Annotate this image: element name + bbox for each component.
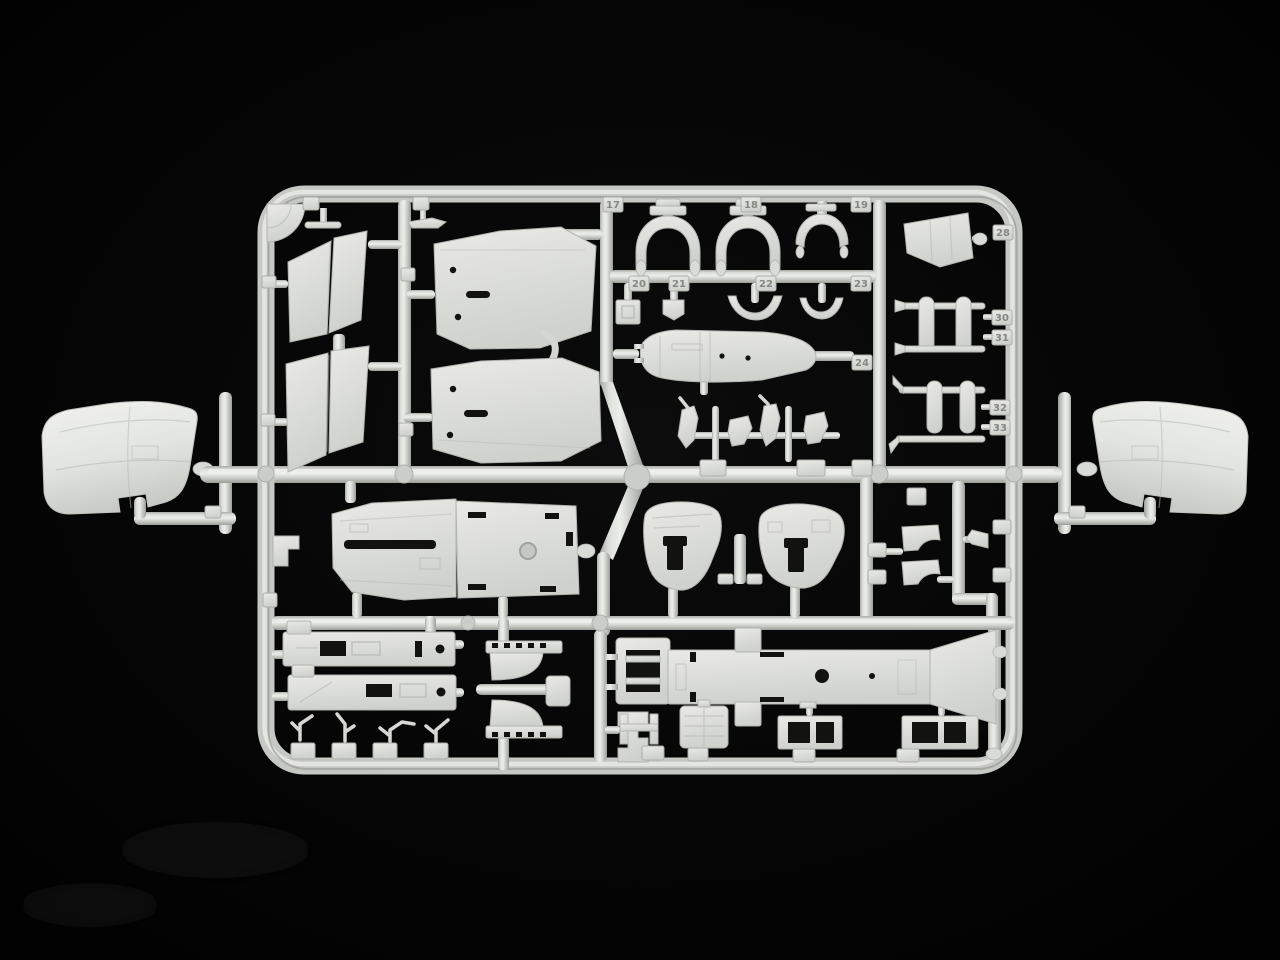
small-t-part (305, 222, 341, 228)
part-tag-33: 33 (990, 420, 1010, 435)
part-tag-28: 28 (993, 225, 1013, 240)
blank-part-tag (868, 543, 886, 557)
part-tag-18: 18 (741, 197, 761, 212)
part-tag-30: 30 (992, 310, 1012, 325)
right-fuselage-panel (1093, 401, 1248, 514)
part-tag-24: 24 (852, 355, 872, 370)
part-tag-22: 22 (756, 276, 776, 291)
fuselage-spine-part (634, 330, 816, 382)
deck-panel-upper (434, 227, 596, 349)
left-elbow-stub (134, 497, 146, 519)
hull-panel-upper-right (329, 231, 367, 333)
blank-part-tag (1069, 506, 1085, 518)
part-tag-32-label: 32 (993, 403, 1007, 414)
part-tag-23-label: 23 (854, 279, 868, 290)
blank-part-tag (868, 570, 886, 584)
part-tag-22-label: 22 (759, 279, 773, 290)
sprue-photo-canvas: 17 18 19 20 21 22 23 24 28 30 31 32 33 (0, 0, 1280, 960)
part-tag-30-label: 30 (995, 313, 1009, 324)
part-tag-17: 17 (603, 197, 623, 212)
left-fuselage-panel (42, 401, 197, 514)
part-tag-32: 32 (990, 400, 1010, 415)
part-tag-17-label: 17 (606, 200, 620, 211)
part-tag-31-label: 31 (995, 333, 1009, 344)
blank-part-tag (993, 520, 1011, 534)
hull-panel-lower-left (286, 353, 328, 472)
hull-panel-lower-right (329, 346, 369, 453)
square-fitting-part (616, 300, 640, 324)
part-tag-28-label: 28 (996, 228, 1010, 239)
blank-part-tag (205, 506, 221, 518)
part-tag-18-label: 18 (744, 200, 758, 211)
part-tag-33-label: 33 (993, 423, 1007, 434)
part-tag-19-label: 19 (854, 200, 868, 211)
part-tag-19: 19 (851, 197, 871, 212)
part-tag-24-label: 24 (855, 358, 869, 369)
blank-part-tag (263, 593, 277, 607)
cockpit-tub-part (332, 499, 595, 600)
part-tag-20-label: 20 (632, 279, 646, 290)
part-tag-21-label: 21 (672, 279, 686, 290)
part-tag-31: 31 (992, 330, 1012, 345)
right-elbow-stub (1144, 497, 1156, 519)
right-gate-blob (1077, 462, 1097, 476)
blank-part-tag (993, 568, 1011, 582)
part-tag-23: 23 (851, 276, 871, 291)
part-tag-20: 20 (629, 276, 649, 291)
photo-of-model-kit-sprue: 17 18 19 20 21 22 23 24 28 30 31 32 33 (0, 0, 1280, 960)
part-tag-21: 21 (669, 276, 689, 291)
